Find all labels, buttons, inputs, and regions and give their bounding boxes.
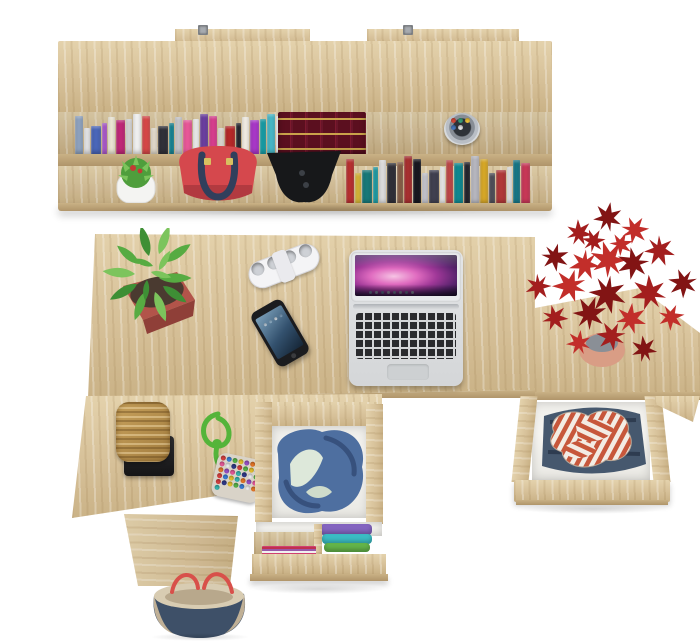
shadow bbox=[518, 504, 668, 514]
lower-drawer-front-panel bbox=[252, 554, 386, 574]
shelf-books-bottom bbox=[346, 155, 532, 205]
shadow bbox=[70, 204, 540, 216]
scene bbox=[0, 0, 700, 641]
tote-bag bbox=[140, 568, 260, 641]
center-drawer-left-rail bbox=[255, 402, 272, 522]
phone-app-icons bbox=[263, 313, 284, 327]
right-drawer bbox=[512, 396, 672, 510]
center-drawer-right-rail bbox=[366, 404, 383, 524]
wall-bracket-icon bbox=[403, 25, 413, 35]
laptop-dock-icons bbox=[369, 291, 414, 294]
shadow bbox=[150, 633, 250, 641]
shadow bbox=[252, 584, 386, 594]
headphones bbox=[261, 147, 347, 207]
red-maple-plant bbox=[520, 200, 700, 375]
folded-clothes-green bbox=[324, 543, 370, 552]
center-drawer-unit bbox=[250, 396, 390, 588]
lower-drawer-front-lip bbox=[250, 574, 388, 581]
laptop-keyboard bbox=[356, 313, 456, 359]
wicker-box bbox=[116, 402, 170, 462]
handbag bbox=[171, 141, 265, 207]
lower-drawer bbox=[250, 522, 390, 588]
desk bbox=[85, 228, 545, 403]
wall-shelf bbox=[55, 25, 555, 217]
phone-home-button bbox=[290, 352, 297, 359]
laptop-lid bbox=[351, 252, 461, 302]
laptop bbox=[349, 250, 463, 386]
green-plant bbox=[93, 228, 235, 340]
laptop-trackpad bbox=[387, 364, 429, 380]
laptop-hinge bbox=[353, 304, 459, 309]
striped-shirt-and-jeans bbox=[536, 402, 652, 482]
pencil-cup bbox=[444, 113, 480, 145]
wall-bracket-icon bbox=[198, 25, 208, 35]
right-drawer-front-panel bbox=[514, 480, 670, 502]
shelf-top-plank bbox=[58, 41, 552, 114]
cactus-pot bbox=[110, 151, 162, 207]
pens bbox=[451, 118, 475, 130]
blue-jacket bbox=[266, 422, 372, 522]
laptop-screen bbox=[355, 255, 457, 296]
side-table-group bbox=[520, 200, 700, 405]
